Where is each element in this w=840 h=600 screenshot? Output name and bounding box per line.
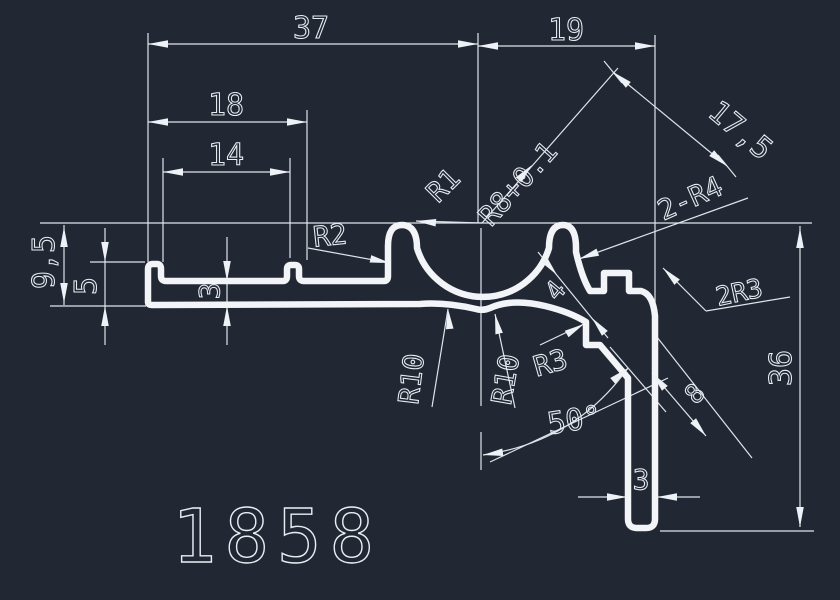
arrowhead: [148, 118, 168, 126]
dim-slot-inner-width: 14: [208, 138, 244, 173]
arrowhead: [163, 168, 183, 176]
dim-slot-width: 18: [208, 88, 244, 123]
label-r8-tolerance: R8+0.1: [472, 135, 564, 232]
label-r3: R3: [530, 342, 572, 383]
label-r10-left: R10: [392, 352, 431, 406]
dim-left-height: 9,5: [27, 235, 62, 289]
dim-latch-length: 8: [679, 378, 711, 410]
arrowhead: [796, 507, 804, 527]
arrowhead: [495, 314, 503, 334]
label-r2: R2: [312, 217, 349, 253]
arrowhead: [458, 40, 478, 48]
part-number: 1858: [172, 494, 382, 580]
arrowhead: [607, 493, 627, 501]
dim-angle: 50°: [545, 399, 604, 442]
dim-line: [432, 309, 448, 407]
arrowhead: [579, 249, 599, 259]
arrowhead: [796, 228, 804, 248]
arrowhead: [270, 168, 290, 176]
arrowhead: [709, 150, 727, 166]
arrowhead: [287, 118, 307, 126]
arrowhead: [613, 72, 631, 88]
label-2r3: 2R3: [713, 274, 765, 313]
dim-arm-thickness: 4: [539, 275, 572, 306]
cad-viewport[interactable]: 37 19 18 14 9,5 5 17,5 50° 36 3 R2 R1 R8…: [0, 0, 840, 600]
label-r1: R1: [420, 162, 467, 209]
arrowhead: [592, 318, 608, 336]
arrowhead: [483, 448, 503, 456]
arrowhead: [478, 42, 498, 50]
arrowhead: [148, 40, 168, 48]
arrowhead: [565, 324, 584, 337]
dimension-lines: [40, 33, 814, 531]
technical-drawing: 37 19 18 14 9,5 5 17,5 50° 36 3 R2 R1 R8…: [0, 0, 840, 600]
dim-right-offset: 19: [548, 13, 584, 48]
label-r10-right: R10: [485, 352, 526, 408]
dim-left-wall: 3: [193, 283, 226, 300]
arrowhead: [635, 42, 655, 50]
arrowhead: [657, 493, 677, 501]
arrowhead: [223, 306, 231, 326]
dim-overall-width: 37: [293, 11, 329, 46]
dim-leg-thickness: 3: [633, 463, 650, 496]
arrowhead: [101, 242, 109, 262]
dim-lip-height: 5: [69, 277, 104, 295]
dim-overall-height: 36: [764, 350, 799, 386]
arrowhead: [101, 306, 109, 326]
